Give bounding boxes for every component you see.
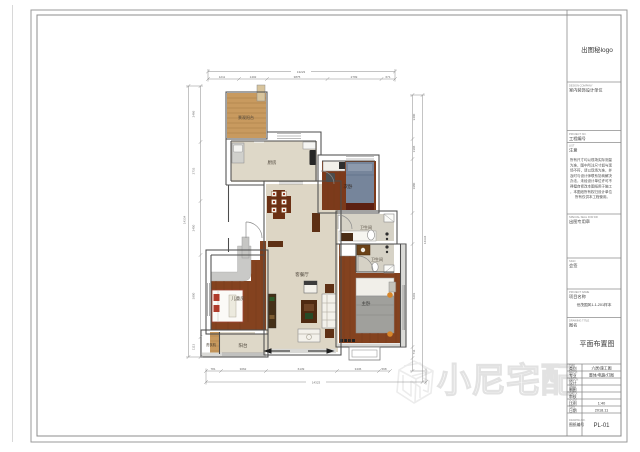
- svg-text:会签: 会签: [569, 262, 578, 269]
- svg-text:出图专用章: 出图专用章: [569, 218, 590, 225]
- svg-text:出图秘logo: 出图秘logo: [581, 45, 613, 54]
- svg-text:3062: 3062: [240, 367, 247, 371]
- svg-text:平面布置图: 平面布置图: [580, 339, 615, 348]
- svg-text:得擅自修改本图纸用于施工: 得擅自修改本图纸用于施工: [570, 184, 612, 189]
- svg-text:14323: 14323: [312, 380, 321, 384]
- svg-text:2733: 2733: [192, 167, 196, 174]
- svg-text:2799: 2799: [351, 75, 358, 79]
- svg-text:1:40: 1:40: [598, 402, 605, 406]
- svg-text:1211: 1211: [219, 75, 226, 79]
- svg-text:所有尺寸均以现场实际测量: 所有尺寸均以现场实际测量: [570, 157, 612, 162]
- svg-text:制图: 制图: [569, 387, 577, 392]
- svg-text:注意: 注意: [569, 147, 577, 154]
- svg-text:2018.11: 2018.11: [595, 409, 608, 413]
- svg-text:图纸编号: 图纸编号: [569, 422, 584, 427]
- svg-text:为准，图中所注尺寸如与现: 为准，图中所注尺寸如与现: [570, 162, 612, 167]
- svg-text:1113: 1113: [192, 344, 196, 351]
- svg-text:场不符，请以现场为准，并: 场不符，请以现场为准，并: [570, 168, 612, 173]
- svg-text:DRAWING NO.: DRAWING NO.: [569, 419, 586, 422]
- svg-text:图名: 图名: [569, 322, 577, 329]
- svg-text:781: 781: [210, 367, 215, 371]
- svg-text:13223: 13223: [297, 70, 306, 74]
- svg-text:14334: 14334: [183, 215, 187, 224]
- svg-text:3436: 3436: [355, 367, 362, 371]
- svg-text:卫生间: 卫生间: [360, 224, 372, 230]
- svg-text:，本图纸所有权归设计单位: ，本图纸所有权归设计单位: [570, 189, 612, 194]
- svg-text:类别: 类别: [569, 366, 577, 371]
- svg-text:专业: 专业: [569, 373, 577, 378]
- svg-text:主卧: 主卧: [362, 300, 371, 307]
- svg-text:儿童房: 儿童房: [231, 295, 245, 302]
- svg-text:6201: 6201: [412, 292, 416, 299]
- svg-text:办法，未经设计单位许可不: 办法，未经设计单位许可不: [570, 178, 612, 183]
- svg-text:1980: 1980: [412, 182, 416, 189]
- svg-text:3400: 3400: [412, 113, 416, 120]
- svg-text:六居/施工图: 六居/施工图: [591, 366, 611, 371]
- svg-text:日期: 日期: [569, 408, 577, 413]
- svg-text:设计: 设计: [569, 380, 577, 385]
- svg-text:PL-01: PL-01: [593, 423, 610, 429]
- svg-text:3900: 3900: [192, 292, 196, 299]
- svg-text:工程编号: 工程编号: [569, 135, 586, 142]
- svg-text:比例: 比例: [569, 401, 577, 406]
- svg-text:2450: 2450: [192, 224, 196, 231]
- svg-text:次卧: 次卧: [344, 183, 353, 190]
- svg-text:711: 711: [412, 349, 416, 354]
- svg-text:世茂国风1-1-201样本: 世茂国风1-1-201样本: [577, 302, 612, 307]
- svg-text:671: 671: [385, 75, 390, 79]
- svg-text:1306: 1306: [412, 145, 416, 152]
- svg-text:整体/电路/灯图: 整体/电路/灯图: [589, 373, 614, 378]
- svg-text:卫生间: 卫生间: [371, 256, 383, 262]
- svg-text:14334: 14334: [423, 235, 427, 244]
- svg-text:6139: 6139: [298, 367, 305, 371]
- svg-text:及时与设计师联系协商解决: 及时与设计师联系协商解决: [570, 173, 612, 178]
- svg-text:客餐厅: 客餐厅: [295, 271, 309, 278]
- svg-text:审核: 审核: [569, 394, 577, 399]
- svg-text:所有仅供本工程使用。: 所有仅供本工程使用。: [575, 194, 610, 199]
- svg-text:景观阳台: 景观阳台: [238, 114, 254, 120]
- svg-text:1402: 1402: [250, 75, 257, 79]
- svg-text:室内装饰设计单位: 室内装饰设计单位: [569, 87, 603, 94]
- svg-text:598: 598: [381, 367, 386, 371]
- svg-text:阳台: 阳台: [239, 342, 248, 349]
- svg-text:项目名称: 项目名称: [569, 293, 586, 300]
- svg-text:厨房: 厨房: [268, 159, 277, 166]
- svg-text:3875: 3875: [294, 75, 301, 79]
- svg-text:2486: 2486: [192, 110, 196, 117]
- svg-text:洗衣机: 洗衣机: [206, 342, 217, 347]
- svg-text:小尼宅配: 小尼宅配: [437, 361, 575, 400]
